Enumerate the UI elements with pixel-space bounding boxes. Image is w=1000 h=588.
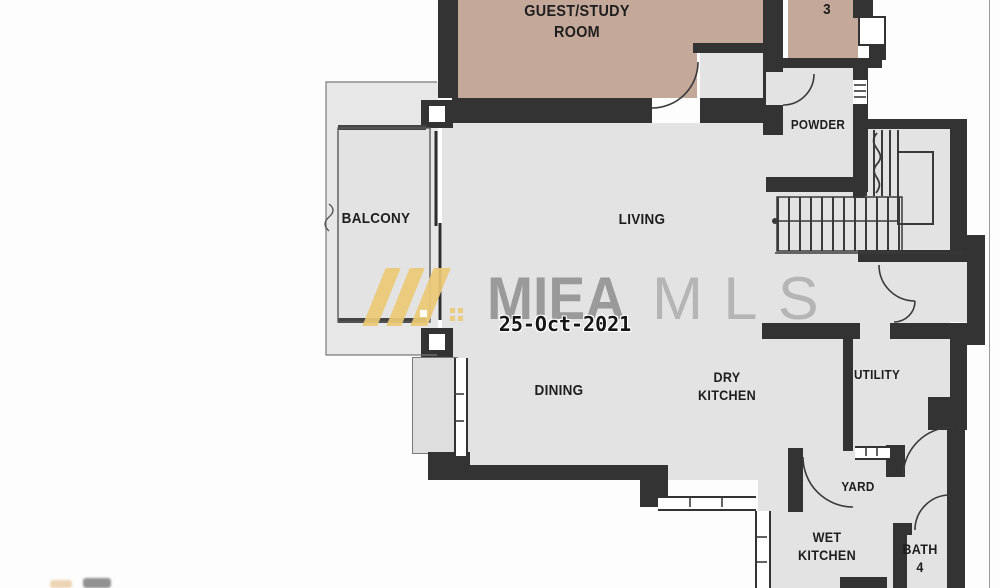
room-label-utility: UTILITY	[854, 367, 900, 384]
room-label-wet-kitchen: WET KITCHEN	[798, 528, 856, 564]
room-label-powder: POWDER	[791, 117, 845, 134]
room-label-balcony: BALCONY	[342, 209, 411, 229]
room-label-living: LIVING	[619, 210, 666, 230]
miea-house-logo-icon	[362, 266, 484, 330]
room-label-guest-study: GUEST/STUDY ROOM	[524, 2, 629, 44]
cropped-text-artifact	[83, 578, 111, 588]
room-label-dry-kitchen: DRY KITCHEN	[698, 368, 756, 404]
room-label-yard: YARD	[841, 479, 874, 496]
room-label-bath4: BATH 4	[902, 540, 937, 576]
watermark-brand-light: MLS	[652, 264, 839, 333]
floor-plan: GUEST/STUDY ROOM 3 POWDER BALCONY LIVING…	[0, 0, 1000, 588]
room-label-dining: DINING	[535, 381, 584, 401]
watermark-date: 25-Oct-2021	[499, 312, 631, 336]
room-label-bath3: 3	[823, 0, 831, 20]
cropped-logo-artifact	[50, 580, 72, 588]
